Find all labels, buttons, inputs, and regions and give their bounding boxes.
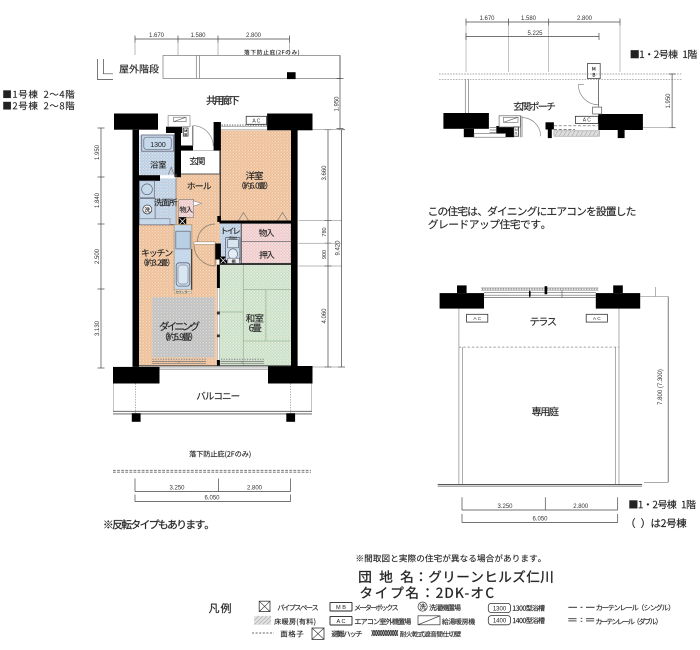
svg-text:1400: 1400 bbox=[493, 619, 507, 625]
svg-text:1.950: 1.950 bbox=[666, 93, 672, 109]
svg-text:A C: A C bbox=[336, 619, 345, 625]
svg-text:1.580: 1.580 bbox=[190, 33, 206, 39]
svg-text:6.050: 6.050 bbox=[532, 516, 548, 522]
svg-text:2.800: 2.800 bbox=[577, 16, 593, 22]
svg-text:780: 780 bbox=[322, 227, 328, 236]
svg-text:1.670: 1.670 bbox=[479, 16, 495, 22]
svg-text:3.130: 3.130 bbox=[95, 320, 101, 336]
svg-text:5.225: 5.225 bbox=[527, 31, 543, 37]
svg-text:4.060: 4.060 bbox=[322, 308, 328, 324]
svg-text:1.950: 1.950 bbox=[95, 144, 101, 160]
svg-text:3.250: 3.250 bbox=[497, 504, 513, 510]
svg-text:1.840: 1.840 bbox=[95, 192, 101, 208]
svg-text:6.050: 6.050 bbox=[204, 496, 220, 502]
svg-text:3.660: 3.660 bbox=[322, 165, 328, 181]
svg-text:2.500: 2.500 bbox=[95, 248, 101, 264]
svg-text:2.800: 2.800 bbox=[573, 504, 589, 510]
svg-text:2.800: 2.800 bbox=[247, 485, 263, 491]
svg-text:1.580: 1.580 bbox=[521, 16, 537, 22]
svg-text:B: B bbox=[184, 132, 187, 136]
svg-text:1.670: 1.670 bbox=[149, 33, 165, 39]
svg-text:A C: A C bbox=[593, 316, 601, 322]
svg-text:1300: 1300 bbox=[150, 142, 166, 149]
svg-text:900: 900 bbox=[322, 250, 328, 259]
svg-text:7.800 (7.300): 7.800 (7.300) bbox=[658, 369, 664, 405]
svg-text:9.420: 9.420 bbox=[336, 240, 342, 256]
svg-text:B: B bbox=[515, 132, 517, 136]
svg-text:3.250: 3.250 bbox=[169, 485, 185, 491]
svg-text:2.800: 2.800 bbox=[246, 33, 262, 39]
svg-text:M B: M B bbox=[336, 605, 346, 611]
svg-text:1300: 1300 bbox=[493, 606, 507, 612]
svg-text:A C: A C bbox=[583, 117, 591, 123]
svg-text:A C: A C bbox=[473, 316, 481, 322]
svg-text:1.950: 1.950 bbox=[334, 96, 340, 112]
svg-text:A C: A C bbox=[252, 118, 260, 124]
